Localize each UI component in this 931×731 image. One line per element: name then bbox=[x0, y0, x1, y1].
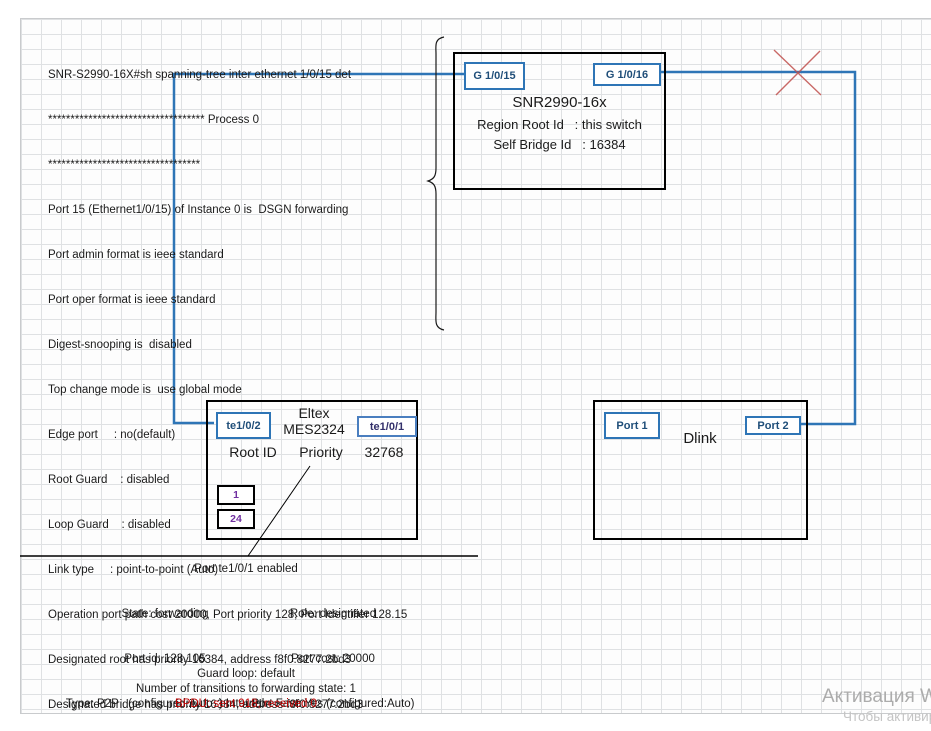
console-line: ********************************** bbox=[48, 158, 407, 173]
eltex-port-te101[interactable]: te1/0/1 bbox=[357, 416, 417, 437]
snr-port-g1015[interactable]: G 1/0/15 bbox=[464, 62, 525, 90]
activation-watermark-line2: Чтобы активиро bbox=[843, 709, 931, 724]
dlink-switch-name: Dlink bbox=[665, 430, 735, 447]
transitions-line: Number of transitions to forwarding stat… bbox=[20, 682, 472, 697]
snr-self-bridge: Self Bridge Id : 16384 bbox=[455, 137, 664, 152]
detail-line: Role: designated bbox=[233, 607, 433, 622]
snr-switch-name: SNR2990-16x bbox=[455, 94, 664, 111]
console-line: Port oper format is ieee standard bbox=[48, 293, 407, 308]
console-line: Digest-snooping is disabled bbox=[48, 338, 407, 353]
root-id-label: Root ID bbox=[220, 444, 286, 460]
dlink-switch-box[interactable]: Port 1 Port 2 Dlink bbox=[593, 400, 808, 540]
vlan-box-24[interactable]: 24 bbox=[217, 509, 255, 529]
detail-line: Port cost: 20000 bbox=[233, 652, 433, 667]
priority-value: 32768 bbox=[356, 444, 412, 460]
eltex-model: MES2324 bbox=[283, 421, 344, 437]
priority-label: Priority bbox=[290, 444, 352, 460]
snr-port-g1016[interactable]: G 1/0/16 bbox=[593, 63, 661, 86]
console-line: Port 15 (Ethernet1/0/15) of Instance 0 i… bbox=[48, 203, 407, 218]
port-details-title: Port te1/0/1 enabled bbox=[20, 562, 472, 577]
dlink-port-2[interactable]: Port 2 bbox=[745, 416, 801, 435]
eltex-brand: Eltex bbox=[298, 405, 329, 421]
eltex-switch-name: EltexMES2324 bbox=[266, 405, 362, 437]
diagram-canvas: SNR-S2990-16X#sh spanning-tree inter eth… bbox=[0, 0, 931, 731]
vlan-box-1[interactable]: 1 bbox=[217, 485, 255, 505]
console-line: Top change mode is use global mode bbox=[48, 383, 407, 398]
dlink-port-1[interactable]: Port 1 bbox=[604, 412, 660, 439]
eltex-port-te102[interactable]: te1/0/2 bbox=[216, 412, 271, 439]
console-line: Port admin format is ieee standard bbox=[48, 248, 407, 263]
console-line: *********************************** Proc… bbox=[48, 113, 407, 128]
console-line: SNR-S2990-16X#sh spanning-tree inter eth… bbox=[48, 68, 407, 83]
activation-watermark-line1: Активация W bbox=[822, 686, 931, 708]
snr-region-root: Region Root Id : this switch bbox=[455, 117, 664, 132]
snr-switch-box[interactable]: G 1/0/15 G 1/0/16 SNR2990-16x Region Roo… bbox=[453, 52, 666, 190]
bpdu-counters-line: BPDU: sent 918, received 0 bbox=[20, 697, 472, 712]
guard-loop-line: Guard loop: default bbox=[20, 667, 472, 682]
eltex-switch-box[interactable]: te1/0/2 te1/0/1 EltexMES2324 Root ID Pri… bbox=[206, 400, 418, 540]
